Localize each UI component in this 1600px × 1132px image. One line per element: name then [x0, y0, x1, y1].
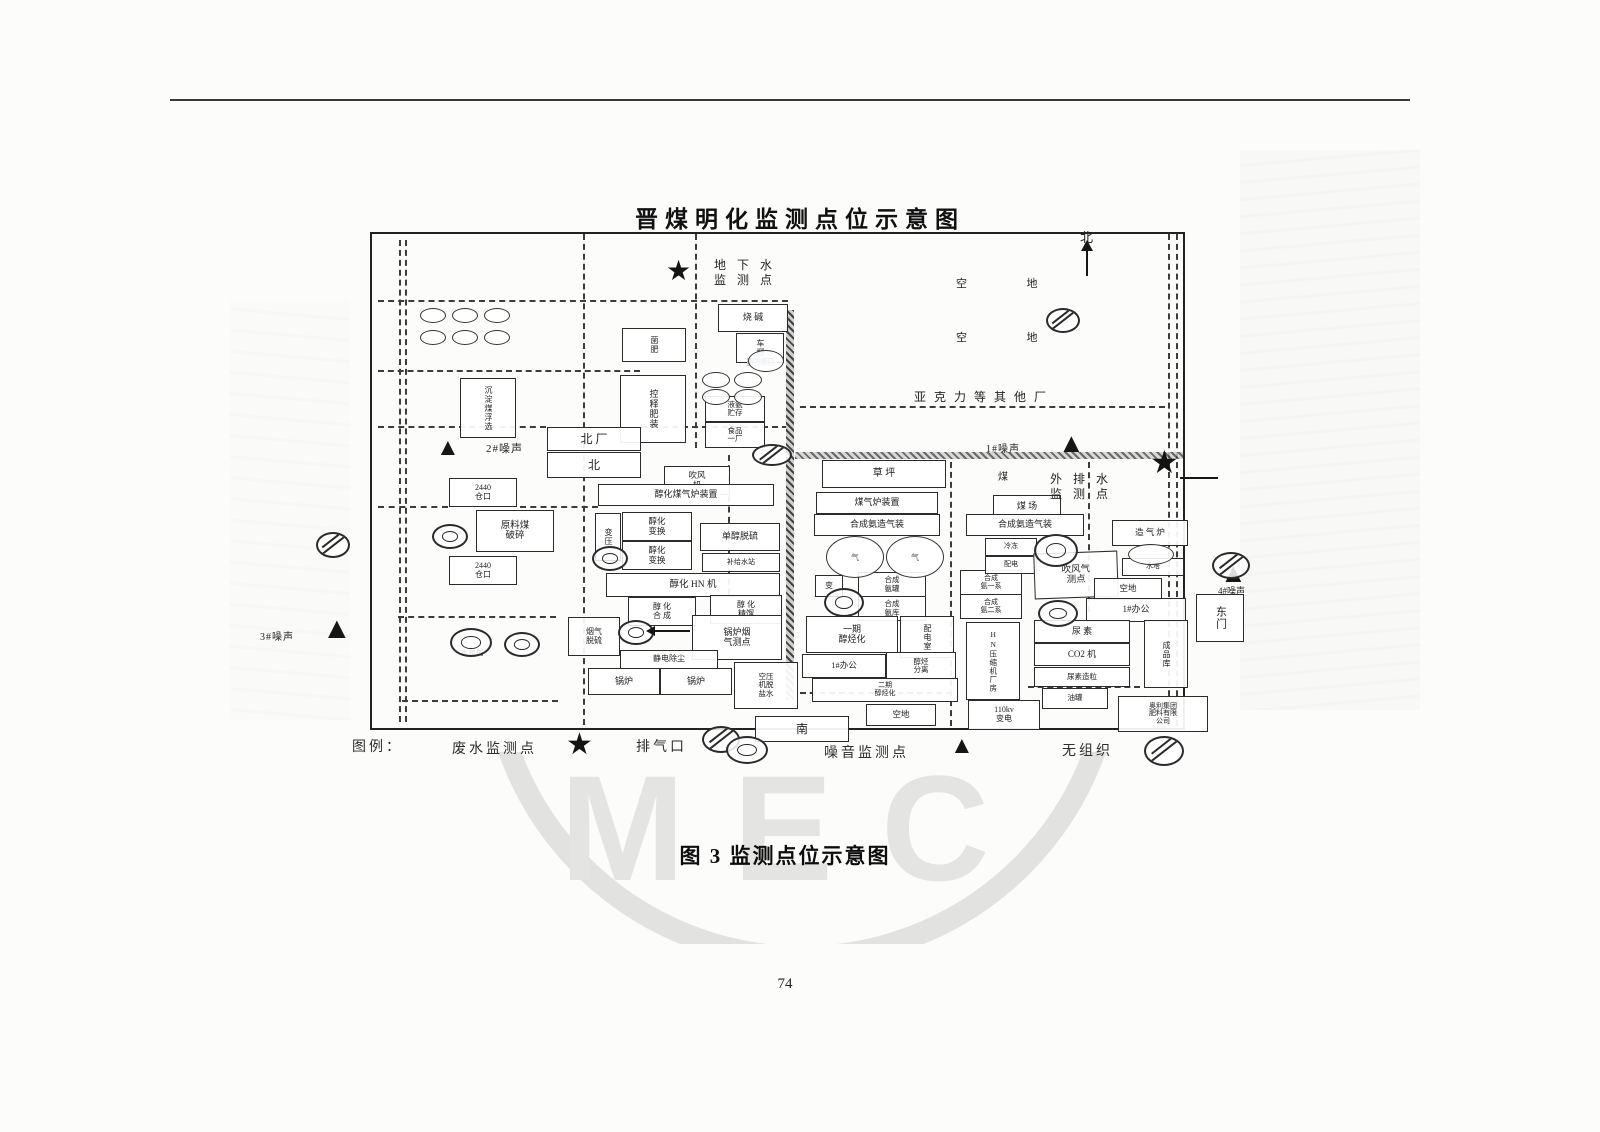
north-arrow-head	[1081, 240, 1093, 251]
facility-box: 草 坪	[822, 460, 946, 488]
road	[378, 506, 448, 508]
scan-streak	[1240, 150, 1420, 710]
facility-box: 北	[547, 452, 641, 478]
vent-icon	[432, 524, 468, 549]
road	[583, 455, 585, 725]
fugitive-icon	[1212, 552, 1250, 579]
page-number: 74	[0, 976, 1570, 993]
facility-box: 2440仓口	[449, 478, 517, 507]
facility-box: 配电	[985, 556, 1037, 574]
tank-ellipse	[420, 330, 446, 345]
map-label: 煤	[998, 472, 1008, 485]
facility-box: 空地	[866, 704, 936, 726]
tank-ellipse	[702, 372, 730, 388]
facility-box: 醇化变换	[622, 541, 692, 570]
vent-icon	[504, 632, 540, 657]
page-top-rule	[170, 99, 1410, 101]
facility-box: 冷冻	[985, 538, 1037, 556]
facility-box: HN压缩机厂房	[966, 622, 1020, 700]
facility-box: 一期醇烃化	[806, 616, 898, 653]
road	[398, 616, 556, 618]
facility-box: 尿素造粒	[1034, 667, 1130, 687]
wastewater-star-icon: ★	[666, 258, 691, 286]
diagram-title: 晋煤明化监测点位示意图	[0, 200, 1600, 234]
facility-box: 合成氨造气装	[814, 514, 940, 536]
gas-holder: 气	[826, 536, 884, 578]
facility-box: 2440仓口	[449, 556, 517, 585]
page: { "page": { "title": "晋煤明化监测点位示意图", "cap…	[0, 0, 1600, 1132]
vent-icon	[450, 628, 492, 657]
tank-ellipse	[484, 330, 510, 345]
facility-box: 烟气脱硫	[568, 617, 620, 656]
outfall-line	[1180, 477, 1218, 479]
watermark-text: MEC	[560, 742, 1037, 915]
legend-label: 图例：	[352, 736, 403, 756]
facility-box: 静电除尘	[620, 650, 718, 669]
tank-ellipse	[452, 330, 478, 345]
legend-item-vent: 排气口	[636, 736, 687, 756]
facility-box: 食品一厂	[705, 422, 765, 448]
fugitive-icon	[1046, 308, 1080, 333]
facility-box: 沉淀煤浮选	[460, 378, 516, 438]
facility-box: 醇化煤气炉装置	[598, 484, 774, 506]
wastewater-star-icon: ★	[1150, 446, 1179, 478]
map-label: 空 地	[956, 278, 1056, 292]
legend-item-noise: 噪音监测点	[824, 742, 909, 762]
facility-box: 奥利集团肥料有限公司	[1118, 696, 1208, 732]
road	[800, 406, 1165, 408]
gas-holder: 气	[886, 536, 944, 578]
scan-streak	[230, 300, 350, 720]
map-label: 亚克力等其他厂	[914, 390, 1054, 405]
noise-triangle-icon: ▲	[436, 436, 460, 460]
facility-box: 醇化变换	[622, 512, 692, 541]
flue-arrow-head	[646, 626, 655, 636]
facility-box: 补给水站	[702, 553, 780, 572]
facility-box: 空地	[1094, 578, 1162, 600]
facility-box: 醇烃分离	[886, 652, 956, 680]
map-label: 地 下 水监 测 点	[714, 258, 776, 288]
tank-ellipse	[484, 308, 510, 323]
facility-box: CO2 机	[1034, 643, 1130, 666]
facility-box: 原料煤破碎	[476, 510, 554, 552]
facility-box: 菌肥	[622, 328, 686, 362]
facility-box: 造 气 炉	[1112, 520, 1188, 546]
facility-box: 南	[755, 716, 849, 742]
legend-item-fugitive: 无组织	[1062, 740, 1113, 760]
vent-icon	[726, 736, 768, 764]
tank-ellipse	[702, 389, 730, 405]
map-label: 3#噪声	[260, 632, 294, 645]
tank-ellipse	[1128, 544, 1174, 565]
tank-ellipse	[748, 350, 784, 372]
facility-box: 1#办公	[802, 654, 886, 678]
facility-box: 醇化 HN 机	[606, 573, 780, 597]
facility-box: 合成氨造气装	[966, 514, 1084, 536]
facility-box: 北 厂	[547, 427, 641, 451]
map-label: 空 地	[956, 332, 1056, 346]
facility-box: 110kv变电	[968, 700, 1040, 730]
legend-item-wastewater: 废水监测点	[452, 738, 537, 758]
flue-arrow-line	[654, 630, 690, 632]
facility-box: 合成氨二系	[960, 594, 1022, 619]
road	[378, 370, 640, 372]
map-label: 1#噪声	[986, 444, 1020, 457]
road	[399, 240, 401, 722]
wastewater-star-icon: ★	[566, 730, 593, 760]
facility-box: 油罐	[1042, 688, 1108, 709]
vent-icon	[592, 546, 628, 571]
noise-triangle-icon: ▲	[950, 734, 974, 758]
figure-caption: 图 3 监测点位示意图	[0, 840, 1570, 870]
map-label: 外 排 水监 测 点	[1050, 472, 1112, 502]
facility-box: 成品库	[1144, 620, 1188, 688]
facility-box: 锅炉	[588, 668, 660, 695]
vent-icon	[1038, 600, 1078, 627]
road	[520, 506, 598, 508]
tank-ellipse	[734, 389, 762, 405]
facility-box: 锅炉	[660, 668, 732, 695]
facility-box: 煤气炉装置	[816, 492, 938, 514]
facility-box: 空压机脱盐水	[734, 662, 798, 709]
fugitive-icon	[752, 444, 792, 466]
facility-box: 烧 碱	[718, 304, 788, 332]
tank-ellipse	[452, 308, 478, 323]
road	[695, 234, 697, 448]
facility-box: 东门	[1196, 594, 1244, 642]
vent-icon	[824, 588, 864, 617]
facility-box: 二期醇烃化	[812, 678, 958, 702]
facility-box: 单醇脱硫	[700, 523, 780, 551]
fugitive-icon	[316, 532, 350, 558]
road	[402, 700, 558, 702]
road	[583, 234, 585, 448]
noise-triangle-icon: ▲	[322, 614, 352, 644]
tank-ellipse	[420, 308, 446, 323]
vent-icon	[1034, 534, 1078, 567]
road	[405, 240, 407, 722]
map-label: 2#噪声	[486, 443, 523, 457]
canal	[786, 310, 794, 700]
facility-box: 1#办公	[1086, 598, 1186, 622]
noise-triangle-icon: ▲	[1058, 430, 1085, 457]
fugitive-icon	[1144, 736, 1184, 766]
tank-ellipse	[734, 372, 762, 388]
north-arrow-line	[1086, 250, 1088, 276]
